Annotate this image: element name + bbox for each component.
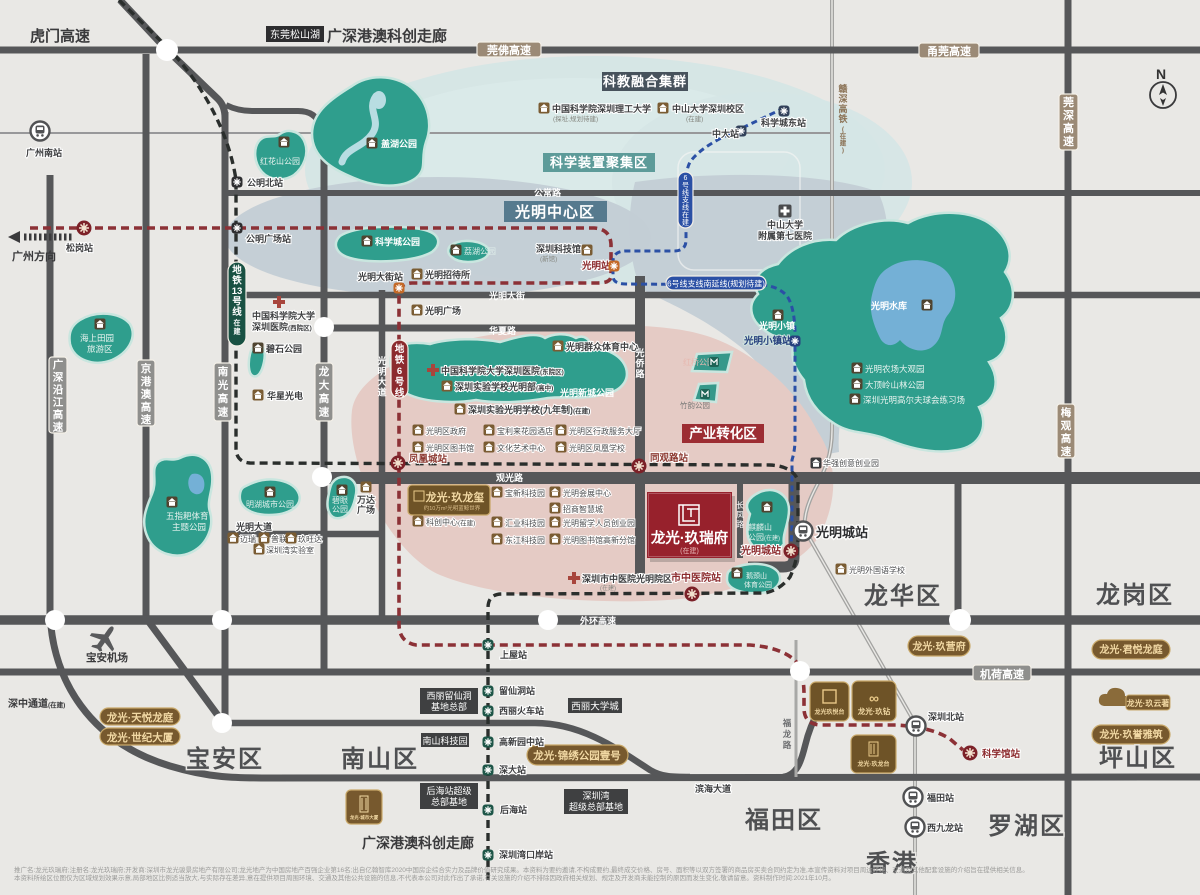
svg-text:龙光·玖钻: 龙光·玖钻 [858, 706, 891, 716]
svg-text:汇业科技园: 汇业科技园 [505, 518, 545, 528]
svg-text:光明图书馆高新分馆: 光明图书馆高新分馆 [563, 535, 635, 545]
svg-text:大顶岭山林公园: 大顶岭山林公园 [865, 380, 925, 390]
svg-text:华星光电: 华星光电 [267, 390, 303, 401]
svg-text:N: N [1156, 66, 1166, 82]
svg-text:松岗站: 松岗站 [66, 242, 93, 253]
svg-text:迈瑞: 迈瑞 [240, 534, 256, 544]
svg-text:深圳实验光明学校(九年制)(在建): 深圳实验光明学校(九年制)(在建) [468, 404, 590, 415]
svg-text:竹韵公园: 竹韵公园 [680, 400, 710, 410]
svg-text:深圳湾: 深圳湾 [582, 790, 609, 801]
svg-text:广州方向: 广州方向 [12, 249, 56, 263]
svg-text:光明城站: 光明城站 [740, 544, 781, 557]
svg-text:宝利来花园酒店: 宝利来花园酒店 [497, 426, 553, 436]
svg-text:上屋站: 上屋站 [500, 649, 527, 660]
svg-text:光明小镇站: 光明小镇站 [743, 335, 792, 347]
svg-text:后海站: 后海站 [500, 804, 527, 815]
svg-text:广深沿江高速: 广深沿江高速 [53, 358, 64, 434]
svg-text:体育公园: 体育公园 [744, 580, 772, 589]
svg-text:科学馆站: 科学馆站 [982, 748, 1021, 760]
svg-text:鹅颈山: 鹅颈山 [746, 571, 767, 580]
svg-text:盖湖公园: 盖湖公园 [381, 138, 417, 149]
svg-text:龙华区: 龙华区 [864, 582, 942, 610]
svg-text:光明水库: 光明水库 [870, 300, 907, 311]
svg-text:总部基地: 总部基地 [431, 796, 467, 807]
svg-text:旅游区: 旅游区 [87, 344, 113, 354]
svg-text:福龙路: 福龙路 [782, 718, 792, 750]
svg-text:同观路站: 同观路站 [650, 452, 689, 464]
svg-text:龙光·世纪大厦: 龙光·世纪大厦 [106, 731, 174, 744]
svg-text:中国科学院大学: 中国科学院大学 [252, 310, 315, 321]
svg-text:龙光·城市大厦: 龙光·城市大厦 [349, 814, 379, 821]
svg-text:∞: ∞ [869, 690, 879, 706]
svg-text:光明中心区: 光明中心区 [514, 203, 595, 221]
svg-text:龙光·玖龙台: 龙光·玖龙台 [858, 760, 890, 768]
svg-text:留仙洞站: 留仙洞站 [499, 685, 535, 696]
svg-text:广场: 广场 [357, 504, 375, 515]
svg-text:福田区: 福田区 [744, 807, 823, 834]
svg-text:中山大学深圳校区: 中山大学深圳校区 [672, 103, 744, 114]
svg-text:科学城公园: 科学城公园 [375, 236, 420, 247]
svg-text:深圳科技馆: 深圳科技馆 [536, 243, 581, 254]
svg-text:东莞松山湖: 东莞松山湖 [270, 28, 320, 41]
svg-text:光明农场大观园: 光明农场大观园 [865, 364, 925, 374]
svg-text:光明招待所: 光明招待所 [424, 269, 470, 280]
svg-text:光明区凤凰学校: 光明区凤凰学校 [569, 443, 625, 453]
svg-text:6号线支线在建: 6号线支线在建 [682, 175, 689, 226]
svg-text:龙光·锦绣公园壹号: 龙光·锦绣公园壹号 [532, 749, 621, 762]
svg-text:公明广场站: 公明广场站 [246, 233, 291, 244]
svg-text:光明区政府: 光明区政府 [426, 426, 466, 436]
svg-text:万达: 万达 [356, 494, 375, 505]
svg-text:罗湖区: 罗湖区 [988, 813, 1066, 840]
svg-text:本资料所绘区位图仅为区域规划效果示意,局部地区比例适当放大,: 本资料所绘区位图仅为区域规划效果示意,局部地区比例适当放大,与实际存在差异,意在… [14, 873, 835, 882]
svg-text:海上田园: 海上田园 [80, 333, 114, 343]
svg-text:主题公园: 主题公园 [172, 522, 206, 532]
svg-text:光明小镇: 光明小镇 [758, 320, 795, 331]
svg-text:光明群众体育中心: 光明群众体育中心 [565, 341, 638, 352]
svg-text:(探址,规划待建): (探址,规划待建) [553, 114, 598, 123]
svg-text:龙光·玖誉雅筑: 龙光·玖誉雅筑 [1098, 728, 1162, 741]
svg-text:五指耙体育: 五指耙体育 [166, 511, 209, 521]
svg-text:长凤路: 长凤路 [736, 500, 744, 529]
svg-text:光明留学人员创业园: 光明留学人员创业园 [563, 518, 635, 528]
svg-text:普联: 普联 [271, 534, 287, 544]
svg-text:东江科技园: 东江科技园 [505, 535, 545, 545]
svg-text:凤凰城站: 凤凰城站 [409, 453, 448, 465]
svg-text:宝安区: 宝安区 [186, 745, 264, 773]
svg-text:坪山区: 坪山区 [1099, 745, 1177, 772]
svg-text:玖旺达: 玖旺达 [298, 534, 322, 544]
svg-text:市中医院站: 市中医院站 [671, 571, 721, 584]
svg-text:光明大街站: 光明大街站 [357, 271, 403, 282]
svg-text:深圳北站: 深圳北站 [928, 711, 964, 722]
svg-text:甬莞高速: 甬莞高速 [927, 44, 971, 58]
svg-text:龙光·玖瑞府: 龙光·玖瑞府 [650, 529, 729, 547]
svg-text:西丽留仙洞: 西丽留仙洞 [426, 690, 471, 701]
svg-text:虎门高速: 虎门高速 [30, 27, 90, 45]
svg-text:光明广场: 光明广场 [424, 305, 461, 316]
svg-text:红花山公园: 红花山公园 [260, 156, 300, 166]
svg-text:滨海大道: 滨海大道 [695, 783, 731, 794]
svg-text:约10万m²光明蓝鲸世界: 约10万m²光明蓝鲸世界 [424, 504, 481, 512]
svg-text:后海站超级: 后海站超级 [426, 785, 471, 796]
svg-text:龙光·天悦龙庭: 龙光·天悦龙庭 [106, 711, 174, 724]
svg-text:龙光·玖云著: 龙光·玖云著 [1126, 698, 1170, 708]
svg-text:福田站: 福田站 [926, 792, 954, 803]
svg-text:中国科学院深圳理工大学: 中国科学院深圳理工大学 [552, 103, 651, 114]
svg-text:深大站: 深大站 [499, 764, 526, 775]
svg-text:产业转化区: 产业转化区 [689, 425, 757, 441]
svg-text:西丽大学城: 西丽大学城 [571, 701, 619, 713]
svg-text:南山区: 南山区 [341, 746, 419, 773]
svg-text:深圳市中医院光明院区: 深圳市中医院光明院区 [582, 573, 672, 584]
svg-text:龙光·玖营府: 龙光·玖营府 [911, 640, 965, 653]
svg-text:(在建): (在建) [600, 584, 616, 592]
svg-text:宝安机场: 宝安机场 [86, 651, 128, 664]
svg-text:麒麟山: 麒麟山 [748, 522, 772, 532]
svg-text:广深港澳科创走廊: 广深港澳科创走廊 [327, 27, 447, 45]
svg-text:科学城东站: 科学城东站 [761, 117, 806, 128]
svg-text:6号线支线南延线(规划待建): 6号线支线南延线(规划待建) [667, 279, 765, 289]
svg-text:光明大道: 光明大道 [235, 521, 272, 532]
svg-text:光明大街: 光明大街 [488, 290, 525, 301]
svg-text:公明北站: 公明北站 [247, 177, 283, 188]
svg-text:光明会展中心: 光明会展中心 [563, 488, 611, 498]
svg-text:公常路: 公常路 [534, 187, 562, 198]
svg-text:华夏路: 华夏路 [489, 325, 517, 336]
svg-text:龙光玖悦台: 龙光玖悦台 [814, 708, 844, 716]
svg-text:招商智慧城: 招商智慧城 [563, 504, 603, 514]
svg-text:附属第七医院: 附属第七医院 [758, 230, 812, 241]
svg-text:超级总部基地: 超级总部基地 [569, 801, 623, 812]
svg-text:(新馆): (新馆) [540, 254, 557, 263]
svg-text:碧石公园: 碧石公园 [265, 343, 302, 354]
svg-text:南山科技园: 南山科技园 [422, 735, 467, 746]
svg-text:深圳湾实验室: 深圳湾实验室 [266, 545, 314, 555]
svg-text:明湖城市公园: 明湖城市公园 [246, 499, 294, 509]
svg-text:龙光·玖龙玺: 龙光·玖龙玺 [425, 490, 485, 504]
svg-text:龙光·君悦龙庭: 龙光·君悦龙庭 [1098, 643, 1163, 656]
svg-text:高新园中站: 高新园中站 [499, 736, 544, 747]
svg-text:宝新科技园: 宝新科技园 [505, 488, 545, 498]
svg-text:光明站: 光明站 [581, 260, 611, 272]
svg-text:碧眼: 碧眼 [332, 495, 348, 505]
svg-text:基地总部: 基地总部 [431, 701, 467, 712]
svg-text:推广名:龙光玖瑞府;注册名:龙光玖瑞府;开发商:深圳市龙光骏: 推广名:龙光玖瑞府;注册名:龙光玖瑞府;开发商:深圳市龙光骏景房地产有限公司;龙… [14, 865, 1029, 874]
svg-text:莞深高速: 莞深高速 [1062, 95, 1074, 148]
svg-text:公园: 公园 [332, 505, 348, 514]
svg-text:华强创意创业园: 华强创意创业园 [823, 458, 879, 468]
svg-text:龙岗区: 龙岗区 [1096, 582, 1174, 609]
svg-text:深圳湾口岸站: 深圳湾口岸站 [499, 849, 553, 860]
svg-text:中山大学: 中山大学 [767, 219, 803, 230]
svg-text:深圳光明高尔夫球会练习场: 深圳光明高尔夫球会练习场 [863, 395, 965, 405]
svg-text:中大站: 中大站 [712, 128, 739, 139]
svg-text:(在建): (在建) [686, 114, 703, 123]
svg-text:广深港澳科创走廊: 广深港澳科创走廊 [362, 835, 474, 851]
svg-text:观光路: 观光路 [496, 472, 524, 483]
svg-text:(在建): (在建) [680, 546, 699, 555]
svg-text:光明大道: 光明大道 [376, 355, 386, 398]
svg-text:西九龙站: 西九龙站 [927, 822, 963, 833]
svg-text:广州南站: 广州南站 [26, 147, 62, 158]
svg-text:光明区图书馆: 光明区图书馆 [426, 443, 474, 453]
svg-text:莞佛高速: 莞佛高速 [486, 43, 531, 57]
svg-text:荔湖公园: 荔湖公园 [464, 246, 496, 256]
svg-text:光明区行政服务大厅: 光明区行政服务大厅 [569, 426, 641, 436]
svg-text:科教融合集群: 科教融合集群 [603, 74, 687, 89]
svg-text:光明新城公园: 光明新城公园 [559, 387, 614, 398]
svg-text:光明外国语学校: 光明外国语学校 [849, 565, 905, 575]
svg-text:科学装置聚集区: 科学装置聚集区 [550, 155, 648, 170]
svg-text:光明城站: 光明城站 [815, 525, 868, 540]
svg-text:西丽火车站: 西丽火车站 [499, 705, 544, 716]
svg-text:文化艺术中心: 文化艺术中心 [497, 443, 545, 453]
svg-text:外环高速: 外环高速 [579, 615, 616, 626]
svg-text:京港澳高速: 京港澳高速 [141, 362, 152, 426]
svg-text:机荷高速: 机荷高速 [980, 667, 1024, 681]
